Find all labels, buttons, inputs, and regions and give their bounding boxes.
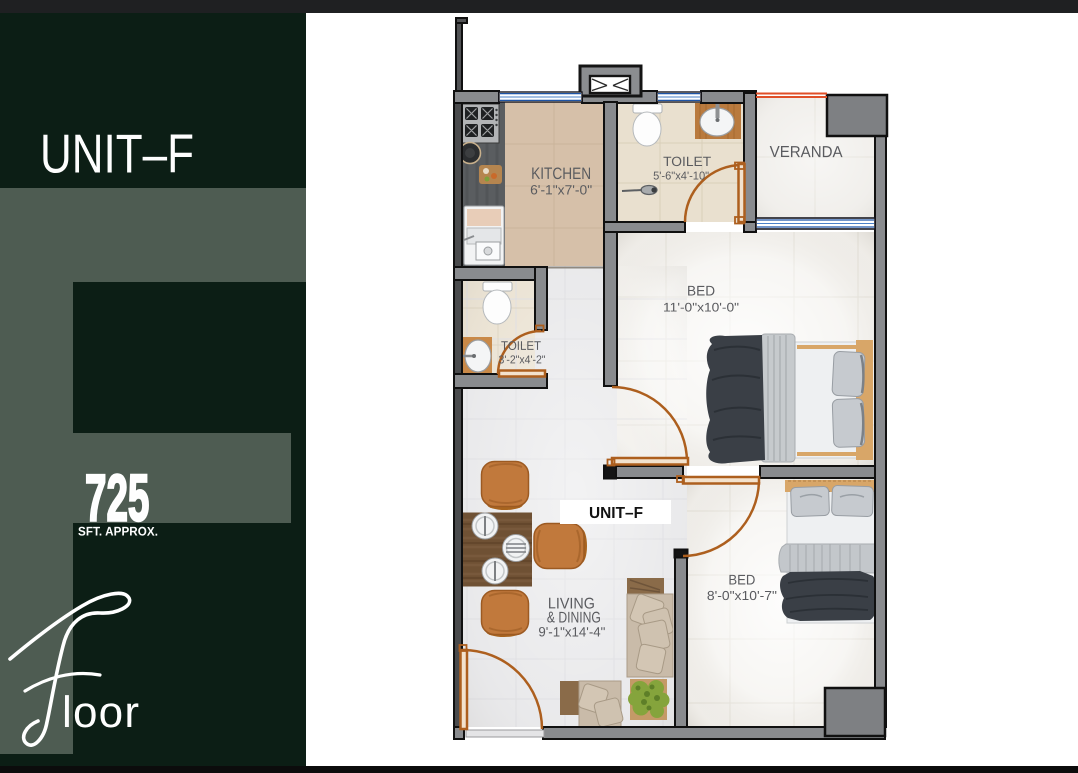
svg-text:TOILET: TOILET	[501, 339, 541, 353]
svg-text:loor: loor	[62, 688, 140, 737]
svg-text:UNIT–F: UNIT–F	[40, 123, 194, 185]
svg-text:3'-2"x4'-2": 3'-2"x4'-2"	[499, 354, 546, 366]
svg-text:11'-0"x10'-0": 11'-0"x10'-0"	[663, 300, 739, 314]
svg-text:TOILET: TOILET	[663, 154, 711, 169]
svg-text:6'-1"x7'-0": 6'-1"x7'-0"	[530, 182, 592, 197]
svg-text:9'-1"x14'-4": 9'-1"x14'-4"	[538, 624, 605, 639]
svg-text:5'-6"x4'-10": 5'-6"x4'-10"	[653, 170, 709, 182]
svg-text:UNIT–F: UNIT–F	[589, 505, 643, 522]
svg-text:VERANDA: VERANDA	[770, 144, 843, 161]
svg-text:BED: BED	[728, 572, 755, 588]
svg-text:KITCHEN: KITCHEN	[531, 165, 591, 183]
svg-text:SFT. APPROX.: SFT. APPROX.	[78, 524, 158, 539]
svg-text:8'-0"x10'-7": 8'-0"x10'-7"	[707, 588, 777, 603]
svg-text:BED: BED	[687, 283, 715, 299]
